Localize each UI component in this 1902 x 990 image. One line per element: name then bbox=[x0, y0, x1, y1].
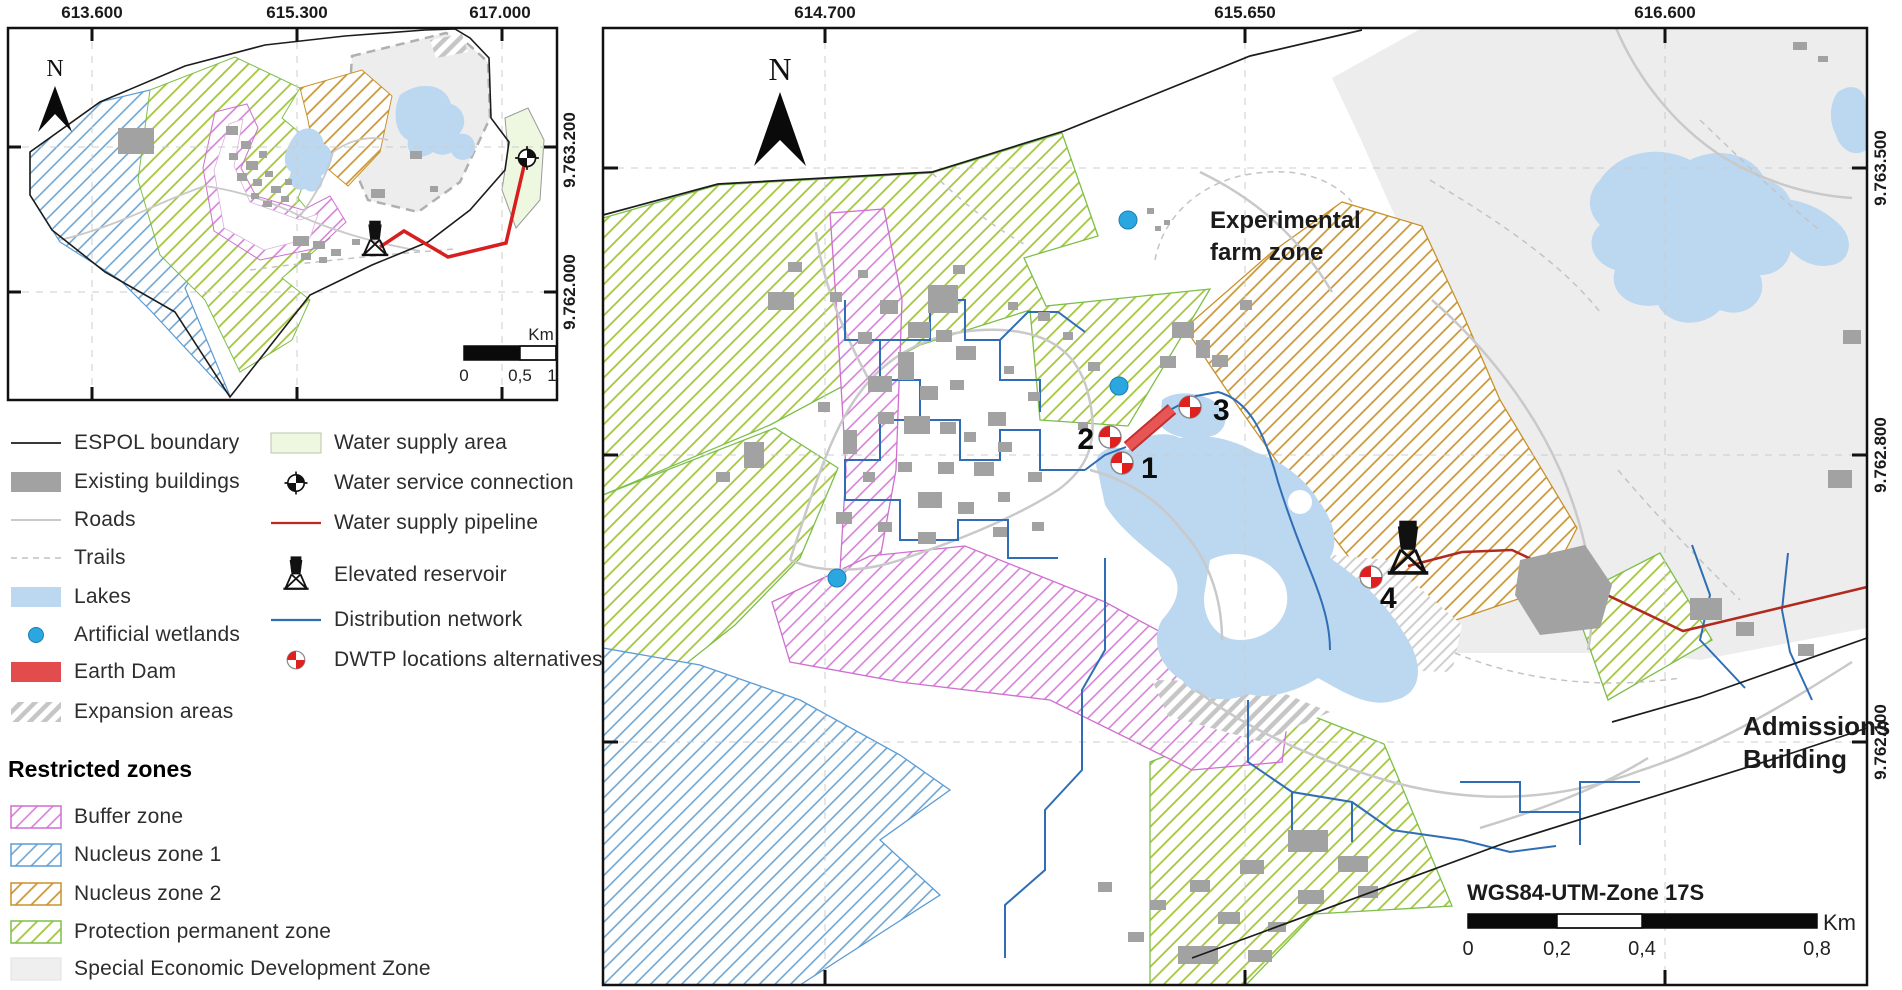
legend-label: Roads bbox=[74, 508, 136, 532]
dwtp-marker-label: 2 bbox=[1077, 423, 1094, 456]
main-map: 1 2 3 4 Experimental farm zone Admission… bbox=[603, 3, 1890, 985]
espol-boundary-swatch-icon bbox=[8, 429, 64, 457]
crs-label: WGS84-UTM-Zone 17S bbox=[1467, 880, 1704, 905]
legend-label: Water supply area bbox=[334, 431, 507, 455]
y-coord-label: 9.762.100 bbox=[1871, 704, 1890, 780]
legend-item-expansion-areas: Expansion areas bbox=[8, 698, 233, 726]
legend-item-protection-permanent-zone: Protection permanent zone bbox=[8, 918, 331, 946]
legend-item-existing-buildings: Existing buildings bbox=[8, 468, 240, 496]
x-coord-label: 614.700 bbox=[794, 3, 855, 22]
legend-item-dwtp-locations: DWTP locations alternatives bbox=[268, 646, 603, 674]
legend-item-special-economic-zone: Special Economic Development Zone bbox=[8, 955, 431, 983]
nucleus-zone-1-swatch-icon bbox=[8, 841, 64, 869]
expansion-areas-swatch-icon bbox=[8, 698, 64, 726]
legend-label: DWTP locations alternatives bbox=[334, 648, 603, 672]
experimental-farm-label: Experimental bbox=[1210, 207, 1361, 234]
legend-label: Special Economic Development Zone bbox=[74, 957, 431, 981]
legend-label: Trails bbox=[74, 546, 126, 570]
legend-label: Earth Dam bbox=[74, 660, 176, 684]
scale-tick: 0 bbox=[459, 366, 468, 385]
legend-label: Nucleus zone 2 bbox=[74, 882, 222, 906]
legend-label: Protection permanent zone bbox=[74, 920, 331, 944]
distribution-network-swatch-icon bbox=[268, 606, 324, 634]
legend-item-elevated-reservoir: Elevated reservoir bbox=[268, 561, 507, 589]
protection-permanent-zone-swatch-icon bbox=[8, 918, 64, 946]
legend-item-distribution-network: Distribution network bbox=[268, 606, 522, 634]
legend-item-earth-dam: Earth Dam bbox=[8, 658, 176, 686]
legend-item-lakes: Lakes bbox=[8, 583, 131, 611]
x-coord-label: 613.600 bbox=[61, 3, 122, 22]
artificial-wetlands-swatch-icon bbox=[8, 621, 64, 649]
water-service-connection-icon bbox=[268, 469, 324, 497]
scale-tick: 0,2 bbox=[1543, 938, 1571, 960]
dwtp-marker-2 bbox=[1099, 426, 1121, 448]
legend-label: Existing buildings bbox=[74, 470, 240, 494]
nucleus-zone-2-swatch-icon bbox=[8, 880, 64, 908]
y-coord-label: 9.763.200 bbox=[560, 112, 579, 188]
admissions-building-label: Building bbox=[1743, 744, 1847, 774]
dwtp-marker-4 bbox=[1360, 566, 1382, 588]
map-figure: N Km 0 0,5 1 613.600 615.300 617.000 9.7… bbox=[0, 0, 1902, 990]
legend-item-artificial-wetlands: Artificial wetlands bbox=[8, 621, 240, 649]
restricted-zones-title: Restricted zones bbox=[8, 756, 192, 783]
special-economic-zone-swatch-icon bbox=[8, 955, 64, 983]
scale-unit: Km bbox=[528, 325, 554, 344]
x-coord-label: 616.600 bbox=[1634, 3, 1695, 22]
scale-tick: 0,8 bbox=[1803, 938, 1831, 960]
admissions-building-label: Admissions bbox=[1743, 711, 1890, 741]
y-coord-label: 9.763.500 bbox=[1871, 130, 1890, 206]
x-coord-label: 615.650 bbox=[1214, 3, 1275, 22]
dwtp-marker-label: 3 bbox=[1213, 394, 1230, 427]
dwtp-marker-label: 4 bbox=[1380, 582, 1397, 615]
roads-swatch-icon bbox=[8, 506, 64, 534]
dwtp-marker-3 bbox=[1179, 396, 1201, 418]
inset-map: N Km 0 0,5 1 613.600 615.300 617.000 9.7… bbox=[8, 3, 579, 400]
legend-label: Buffer zone bbox=[74, 805, 183, 829]
dwtp-marker-label: 1 bbox=[1141, 452, 1158, 485]
legend-item-trails: Trails bbox=[8, 544, 126, 572]
earth-dam-swatch-icon bbox=[8, 658, 64, 686]
trails-swatch-icon bbox=[8, 544, 64, 572]
legend-label: Nucleus zone 1 bbox=[74, 843, 222, 867]
scale-tick: 1 bbox=[547, 366, 556, 385]
legend-label: Distribution network bbox=[334, 608, 522, 632]
legend-label: Artificial wetlands bbox=[74, 623, 240, 647]
y-coord-label: 9.762.000 bbox=[560, 254, 579, 330]
legend-item-buffer-zone: Buffer zone bbox=[8, 803, 183, 831]
legend-label: Water supply pipeline bbox=[334, 511, 538, 535]
water-supply-area-swatch-icon bbox=[268, 429, 324, 457]
legend-item-nucleus-zone-2: Nucleus zone 2 bbox=[8, 880, 222, 908]
north-label: N bbox=[46, 56, 63, 82]
dwtp-location-icon bbox=[268, 646, 324, 674]
scale-tick: 0,5 bbox=[508, 366, 532, 385]
experimental-farm-label: farm zone bbox=[1210, 239, 1323, 266]
elevated-reservoir-icon bbox=[268, 561, 324, 589]
north-label: N bbox=[768, 51, 791, 87]
x-coord-label: 617.000 bbox=[469, 3, 530, 22]
buffer-zone-swatch-icon bbox=[8, 803, 64, 831]
x-coord-label: 615.300 bbox=[266, 3, 327, 22]
lakes-swatch-icon bbox=[8, 583, 64, 611]
legend-label: Elevated reservoir bbox=[334, 563, 507, 587]
legend-item-espol-boundary: ESPOL boundary bbox=[8, 429, 239, 457]
legend-label: Lakes bbox=[74, 585, 131, 609]
scale-unit: Km bbox=[1823, 910, 1856, 935]
legend-label: Expansion areas bbox=[74, 700, 233, 724]
y-coord-label: 9.762.800 bbox=[1871, 417, 1890, 493]
dwtp-marker-1 bbox=[1111, 452, 1133, 474]
legend-item-roads: Roads bbox=[8, 506, 136, 534]
legend-item-water-supply-pipeline: Water supply pipeline bbox=[268, 509, 538, 537]
legend-item-water-service-connection: Water service connection bbox=[268, 469, 574, 497]
legend-label: Water service connection bbox=[334, 471, 574, 495]
water-supply-pipeline-swatch-icon bbox=[268, 509, 324, 537]
legend-label: ESPOL boundary bbox=[74, 431, 239, 455]
legend-item-nucleus-zone-1: Nucleus zone 1 bbox=[8, 841, 222, 869]
existing-buildings-swatch-icon bbox=[8, 468, 64, 496]
scale-tick: 0,4 bbox=[1628, 938, 1656, 960]
scale-tick: 0 bbox=[1462, 938, 1473, 960]
legend-item-water-supply-area: Water supply area bbox=[268, 429, 507, 457]
